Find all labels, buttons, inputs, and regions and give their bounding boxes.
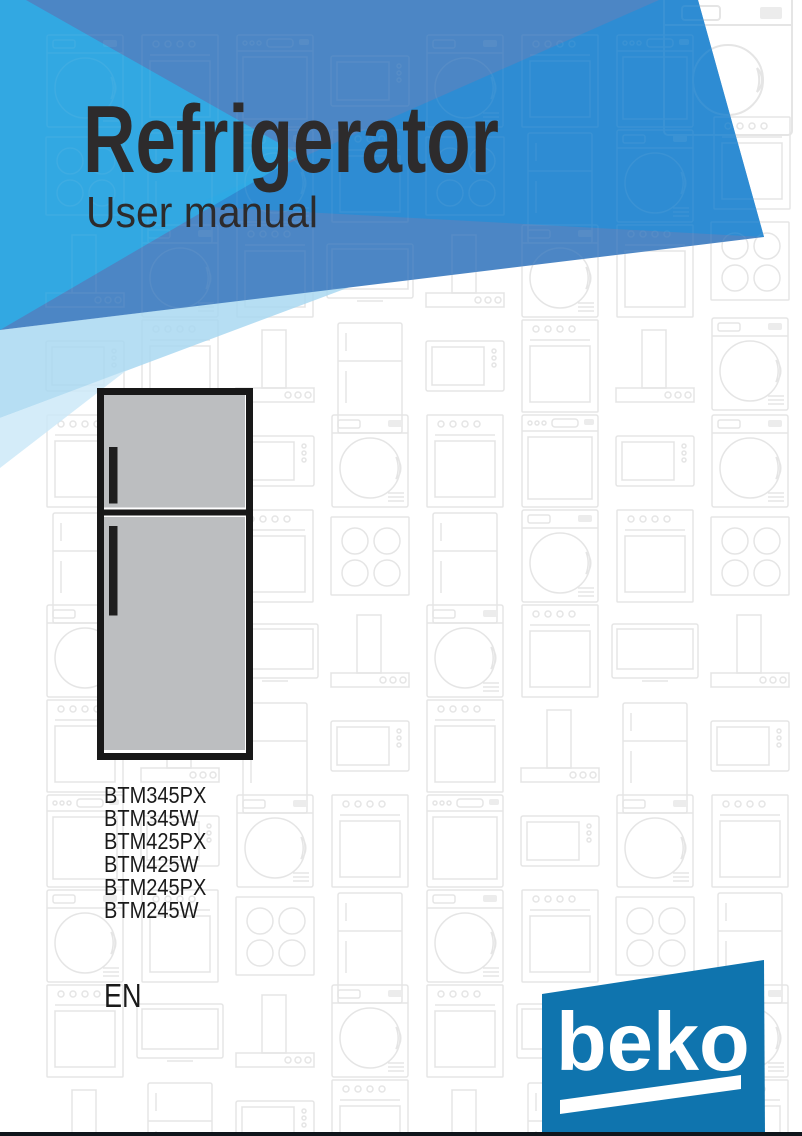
svg-text:beko: beko — [556, 995, 750, 1088]
